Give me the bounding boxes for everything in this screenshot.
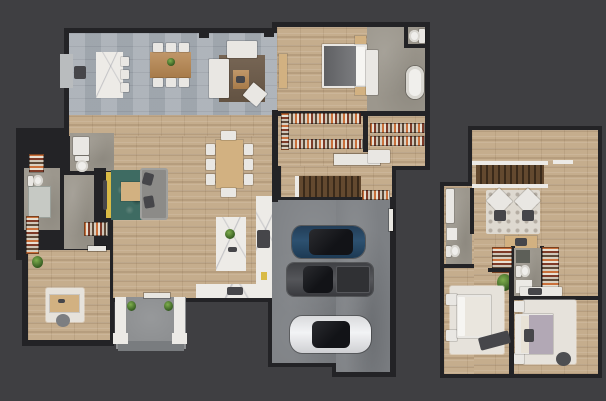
bed1-pillows <box>458 297 465 336</box>
bath3-shower <box>516 250 530 263</box>
bedroom1-wall <box>488 268 512 272</box>
floor-plan-stage <box>0 0 606 401</box>
bedroom2-tv <box>528 288 542 295</box>
bath2-mat <box>447 228 457 240</box>
bed2-nightstand-1 <box>514 301 524 312</box>
bath2-wall-b <box>444 264 474 268</box>
upper-stairs <box>476 165 544 184</box>
bed2-laptop <box>524 329 534 342</box>
bed1-nightstand-2 <box>446 330 457 341</box>
lounge-ottoman-1 <box>494 210 506 221</box>
upper-stair-stringer-2 <box>472 184 548 188</box>
upper-console-tv <box>515 238 527 246</box>
bath2-vanity <box>446 189 454 223</box>
toilet-bowl-5 <box>520 265 530 277</box>
second-floor-plan <box>0 0 606 401</box>
bed2-nightstand-2 <box>514 353 524 364</box>
bath2-wall-r <box>470 188 474 234</box>
lounge-ottoman-2 <box>522 210 534 221</box>
bed1-nightstand-1 <box>446 294 457 305</box>
bed2-ottoman <box>556 352 571 366</box>
upper-railing <box>553 160 573 164</box>
bed1-duvet <box>464 297 490 336</box>
toilet-bowl-4 <box>450 245 460 257</box>
